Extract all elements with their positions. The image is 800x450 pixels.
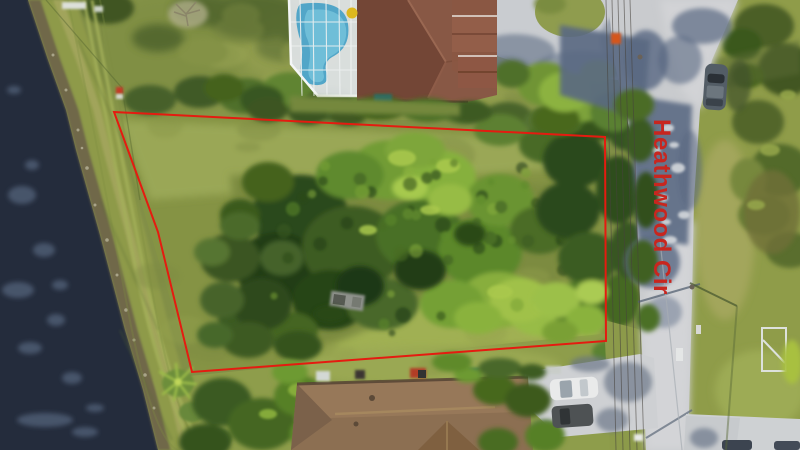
svg-text:Heathwood Cir: Heathwood Cir — [648, 119, 675, 295]
